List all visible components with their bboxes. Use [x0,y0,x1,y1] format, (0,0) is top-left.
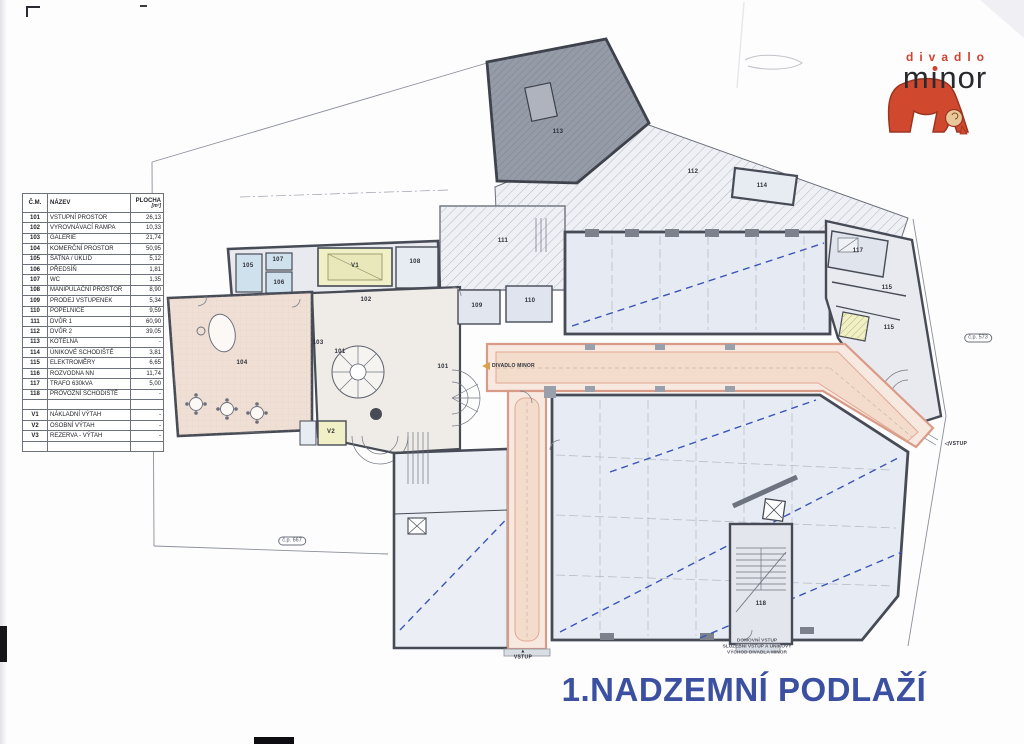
corridor-direction-sign: DIVADLO MINOR [482,362,535,370]
legend-row: 118PROVOZNÍ SCHODIŠTĚ- [23,389,164,399]
legend-row: 102VYROVNÁVACÍ RAMPA10,33 [23,223,164,233]
logo-letter: o [958,60,976,95]
legend-row: 114ÚNIKOVÉ SCHODIŠTĚ3,81 [23,348,164,358]
entrance-label: ◁VSTUP [945,441,967,447]
courtyard-111 [440,206,565,290]
room-number-label: 101 [335,349,346,355]
logo-letter-i: ı [930,62,940,93]
left-arrow-icon [482,362,490,370]
room-number-label: 104 [237,360,248,366]
room-number-label: 115 [884,325,895,331]
logo-minor-text: mınor [878,62,1012,93]
drawing-title: 1.NADZEMNÍ PODLAŽÍ [505,671,983,709]
room-number-label: 103 [313,340,324,346]
legend-header-nazev: NÁZEV [48,194,131,213]
legend-row: 104KOMERČNÍ PROSTOR50,95 [23,244,164,254]
scan-artifact [0,626,7,662]
legend-row: 111DVŮR 160,90 [23,316,164,326]
legend-row: 110POPELNICE9,59 [23,306,164,316]
room-number-label: 114 [757,183,768,189]
room-number-label: 105 [243,263,254,269]
legend-row: V1NÁKLADNÍ VÝTAH- [23,410,164,420]
registration-mark [26,6,28,17]
room-number-label: 110 [525,298,536,304]
legend-row: 113KOTELNA- [23,337,164,347]
room-number-label: 102 [361,297,372,303]
scan-artifact [254,737,294,744]
parcel-number-label: č.p. 573 [964,334,992,343]
entrance-label: ▲VSTUP [514,650,532,661]
legend-row: 103GALERIE21,74 [23,233,164,243]
legend-header-row: Č.M. NÁZEV PLOCHA [m²] [23,194,164,213]
scanned-floorplan-page: Č.M. NÁZEV PLOCHA [m²] 101VSTUPNÍ PROSTO… [0,0,1024,744]
legend-table: Č.M. NÁZEV PLOCHA [m²] 101VSTUPNÍ PROSTO… [22,193,164,452]
room-number-label: 108 [410,259,421,265]
room-number-label: V1 [351,263,359,269]
theatre-logo: divadlo mınor [878,50,1012,93]
legend-row: 108MANIPULAČNÍ PROSTOR8,90 [23,285,164,295]
room-number-label: 112 [688,169,699,175]
legend-row [23,400,164,410]
legend-header-cm: Č.M. [23,194,48,213]
entrance-note-line: VÝCHOD DIVADLA MINOR [723,650,792,656]
room-number-label: 106 [274,280,285,286]
room-number-label: 117 [853,248,864,254]
legend-row: 112DVŮR 239,05 [23,327,164,337]
room-number-label: 113 [553,129,564,135]
legend-row: 115ELEKTROMĚRY6,65 [23,358,164,368]
entrance-note: DOMOVNÍ VSTUPSLUŽEBNÍ VSTUP A ÚNIKOVÝVÝC… [723,638,792,655]
room-number-label: 118 [756,601,767,607]
legend-header-plocha: PLOCHA [m²] [131,194,164,213]
logo-letter: r [976,60,987,95]
logo-red-dot [932,66,937,71]
room-number-label: V2 [327,429,335,435]
entrance-label-text: VSTUP [949,441,967,447]
logo-letter: n [939,60,957,95]
legend-row: 106PŘEDSÍŇ1,81 [23,264,164,274]
legend-row: 109PRODEJ VSTUPENEK5,34 [23,296,164,306]
legend-row: 101VSTUPNÍ PROSTOR26,13 [23,213,164,223]
legend-row: V2OSOBNÍ VÝTAH- [23,420,164,430]
room-number-label: 101 [438,364,449,370]
legend-row: 117TRAFO 630kVA5,00 [23,379,164,389]
registration-mark [26,6,40,8]
corridor-sign-label: DIVADLO MINOR [492,363,535,369]
legend-row: 116ROZVODNA NN11,74 [23,368,164,378]
room-number-label: 115 [882,285,893,291]
top-hall [565,229,830,334]
legend-row [23,441,164,451]
room-number-label: 109 [472,303,483,309]
legend-row: 107WC1,35 [23,275,164,285]
registration-mark [140,5,147,7]
entrance-label-text: VSTUP [514,655,532,661]
room-number-label: 107 [273,257,284,263]
elevator-v2 [300,421,346,445]
parcel-number-label: č.p. 667 [278,537,306,546]
legend-row: V3REZERVA - VÝTAH- [23,431,164,441]
room-number-label: 111 [498,238,508,244]
logo-letter: m [903,60,930,95]
entrance-note-line: SLUŽEBNÍ VSTUP A ÚNIKOVÝ [723,644,792,650]
legend-row: 105ŠATNA / ÚKLID5,12 [23,254,164,264]
